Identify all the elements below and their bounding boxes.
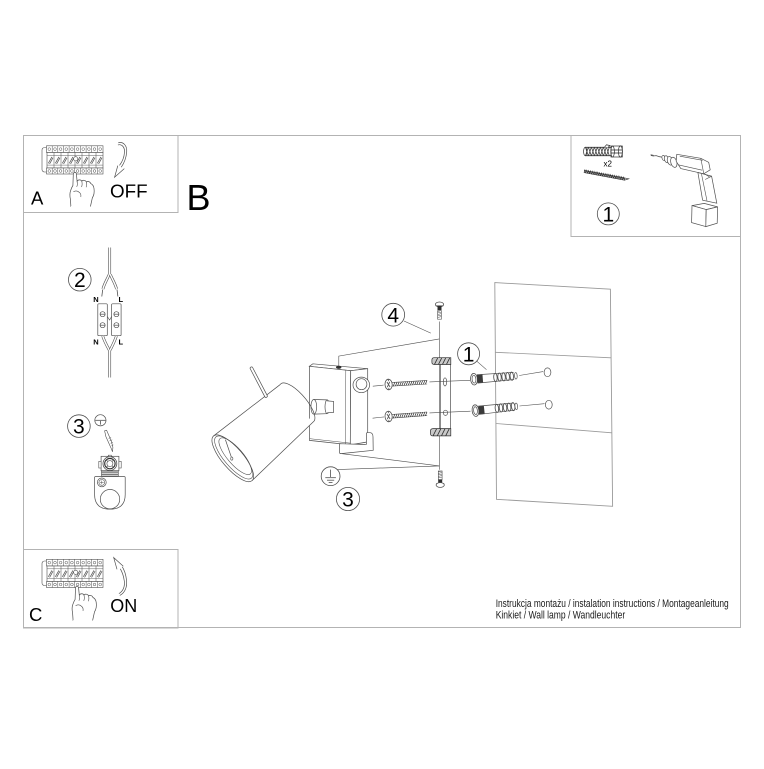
svg-text:B: B: [187, 177, 211, 218]
svg-text:3: 3: [73, 416, 85, 439]
svg-text:2: 2: [74, 269, 86, 292]
svg-text:1: 1: [463, 343, 475, 366]
svg-text:1: 1: [602, 203, 614, 226]
svg-text:Kinkiet / Wall lamp / Wandleuc: Kinkiet / Wall lamp / Wandleuchter: [496, 610, 626, 622]
svg-text:x2: x2: [604, 160, 613, 169]
svg-text:N: N: [93, 338, 98, 347]
svg-text:C: C: [29, 604, 42, 625]
svg-text:A: A: [31, 188, 44, 209]
svg-text:ON: ON: [110, 596, 137, 616]
svg-text:OFF: OFF: [110, 180, 148, 201]
svg-text:Instrukcja montażu / instalati: Instrukcja montażu / instalation instruc…: [496, 598, 729, 610]
svg-text:3: 3: [342, 489, 354, 512]
svg-text:L: L: [119, 338, 124, 347]
svg-text:N: N: [93, 295, 98, 304]
svg-text:4: 4: [387, 304, 399, 327]
svg-text:L: L: [119, 295, 124, 304]
